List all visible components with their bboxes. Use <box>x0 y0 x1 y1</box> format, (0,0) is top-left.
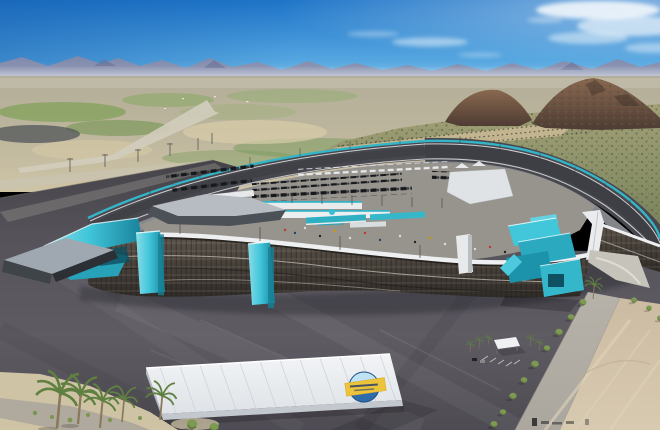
raceway-rendering-image <box>0 0 660 430</box>
parked-car <box>480 360 485 363</box>
parked-car <box>472 358 477 361</box>
teal-stair-tower-1 <box>136 231 165 295</box>
white-elevator-tower <box>456 234 473 274</box>
teal-stair-tower-2 <box>248 242 275 308</box>
victory-lane-pool <box>329 209 335 215</box>
